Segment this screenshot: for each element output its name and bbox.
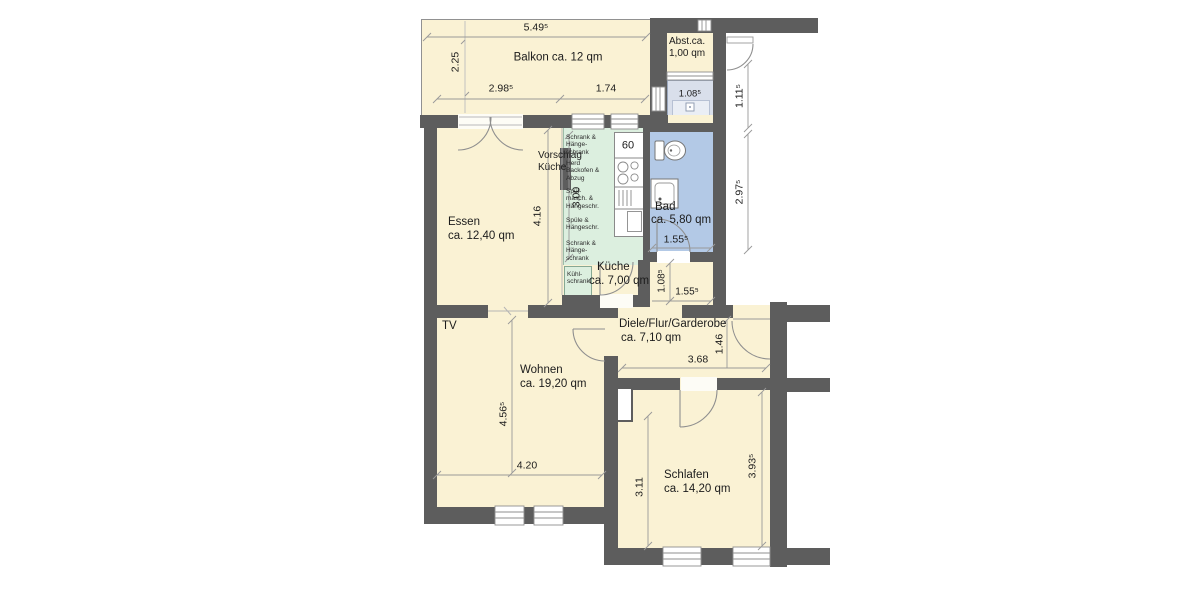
room-area-bad: ca. 5,80 qm xyxy=(651,214,711,227)
dim-essen-height: 4.16 xyxy=(533,206,544,226)
cabinet-label-4: Spüle & Hängeschr. xyxy=(566,217,599,232)
dim-diele-width: 3.68 xyxy=(688,355,708,366)
toilet-icon xyxy=(655,141,686,160)
dim-diele-height: 1.46 xyxy=(715,334,726,354)
shaft-window-icon xyxy=(686,103,694,111)
dim-bad-width: 1.55⁵ xyxy=(664,235,689,246)
dim-corridor-width: 1.08⁵ xyxy=(657,269,668,293)
dim-schlafen-right-height: 3.93⁵ xyxy=(748,454,759,479)
room-label-essen: Essen xyxy=(448,216,480,229)
cabinet-label-1: Schrank & Hänge- schrank xyxy=(566,134,596,156)
dim-wohnen-height: 4.56⁵ xyxy=(499,402,510,427)
dim-kitchen-length: 3.00 xyxy=(572,187,583,207)
dim-balkon-bottom-2: 1.74 xyxy=(596,84,616,95)
dim-right-upper: 1.11⁵ xyxy=(735,84,746,108)
label-tv: TV xyxy=(442,320,457,333)
dim-schlafen-left-height: 3.11 xyxy=(635,477,646,497)
room-label-wohnen: Wohnen xyxy=(520,364,563,377)
room-area-kueche: ca. 7,00 qm xyxy=(589,275,649,288)
room-label-diele: Diele/Flur/Garderobe xyxy=(619,318,726,331)
room-area-diele: ca. 7,10 qm xyxy=(621,332,681,345)
floor-plan: Balkon ca. 12 qm Abst.ca. 1,00 qm Essen … xyxy=(0,0,1200,600)
dim-shaft-width: 1.08⁵ xyxy=(679,89,701,100)
dim-wohnen-width: 4.20 xyxy=(517,461,537,472)
cabinet-width-60: 60 xyxy=(622,141,634,152)
cabinet-label-5: Schrank & Hänge- schrank xyxy=(566,240,596,262)
room-area-essen: ca. 12,40 qm xyxy=(448,230,514,243)
dim-balkon-top: 5.49⁵ xyxy=(524,23,549,34)
dim-corridor-length: 1.55⁵ xyxy=(675,287,699,298)
room-label-bad: Bad xyxy=(655,201,675,214)
room-area-wohnen: ca. 19,20 qm xyxy=(520,378,586,391)
cabinet-label-kuehlschrank: Kühl- schrank xyxy=(567,271,590,286)
room-label-kueche: Küche xyxy=(597,261,630,274)
kitchen-unit-icons xyxy=(614,158,643,232)
room-area-schlafen: ca. 14,20 qm xyxy=(664,483,730,496)
dim-balkon-bottom-1: 2.98⁵ xyxy=(489,84,514,95)
room-label-balkon: Balkon ca. 12 qm xyxy=(514,52,603,65)
room-label-abstellraum: Abst.ca. 1,00 qm xyxy=(669,36,705,60)
dim-right-lower: 2.97⁵ xyxy=(735,180,746,205)
dim-balkon-left: 2.25 xyxy=(451,52,462,72)
room-label-schlafen: Schlafen xyxy=(664,469,709,482)
cabinet-label-2: Herd Backofen & Abzug xyxy=(566,160,599,182)
bathroom-fixtures xyxy=(651,103,694,208)
